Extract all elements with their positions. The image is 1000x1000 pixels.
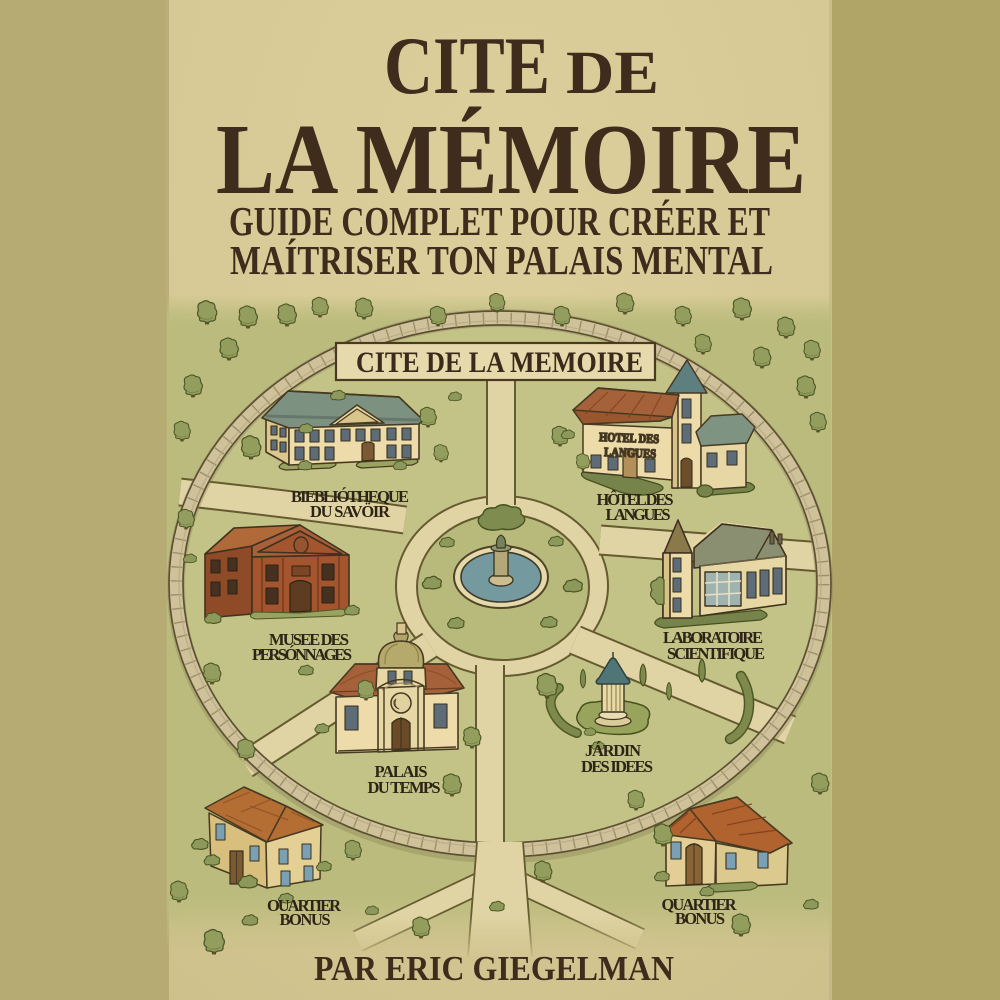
svg-text:LANGUES: LANGUES [604,445,656,461]
svg-text:PAR ERIC GIEGELMAN: PAR ERIC GIEGELMAN [314,949,674,988]
svg-text:PERSÓNNAGES: PERSÓNNAGES [252,645,352,664]
svg-text:HOTEL DES: HOTEL DES [599,430,659,446]
svg-text:SCIENTIFIQUE: SCIENTIFIQUE [667,644,765,663]
svg-text:DU SAVÖIR: DU SAVÖIR [310,502,391,521]
svg-text:MAÍTRISER TON PALAIS MENTAL: MAÍTRISER TON PALAIS MENTAL [230,237,773,283]
svg-text:CITE DE LA MEMOIRE: CITE DE LA MEMOIRE [356,346,643,379]
svg-text:DES IDEES: DES IDEES [581,757,653,776]
svg-text:CITE: CITE [384,20,550,111]
svg-text:BONUS: BONUS [675,909,725,928]
svg-text:LANGUES: LANGUES [606,505,671,524]
svg-text:BONUS: BONUS [280,910,331,929]
svg-text:DU TEMPS: DU TEMPS [368,778,441,797]
svg-text:DE: DE [566,40,659,107]
